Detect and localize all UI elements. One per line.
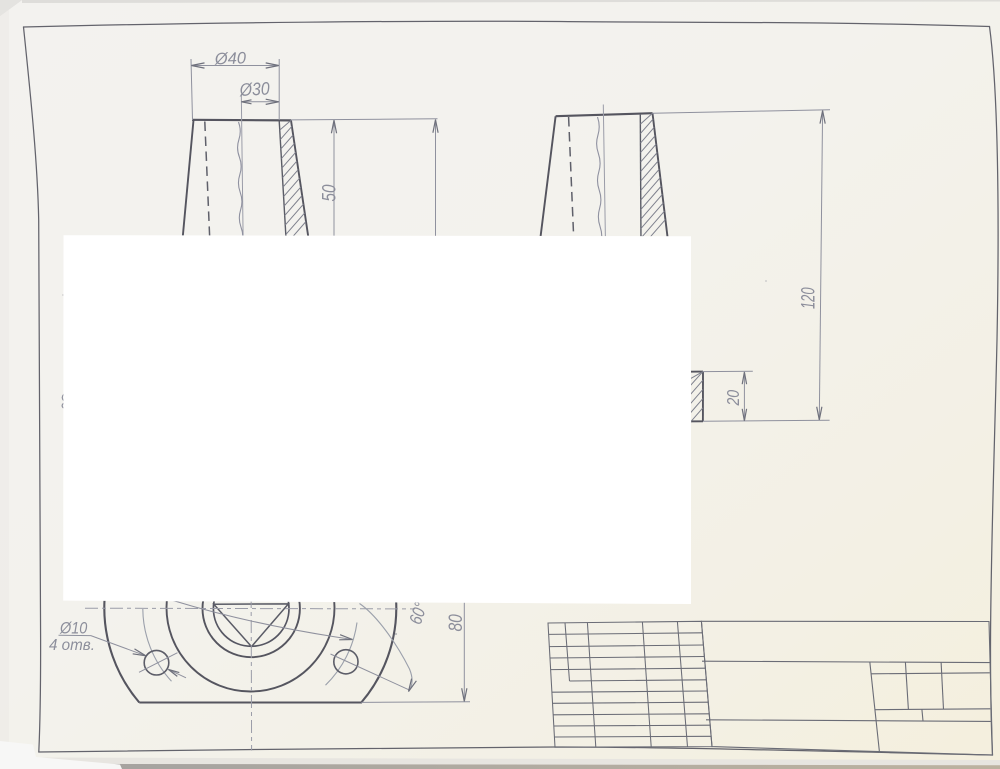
svg-text:Ø10: Ø10 <box>59 619 87 637</box>
svg-text:50: 50 <box>318 184 340 201</box>
svg-text:80: 80 <box>445 614 467 632</box>
svg-text:Ø30: Ø30 <box>238 79 270 101</box>
svg-text:120: 120 <box>798 287 819 309</box>
svg-text:4 отв.: 4 отв. <box>49 637 95 654</box>
svg-text:20: 20 <box>723 390 743 406</box>
svg-text:Ø40: Ø40 <box>214 49 248 68</box>
